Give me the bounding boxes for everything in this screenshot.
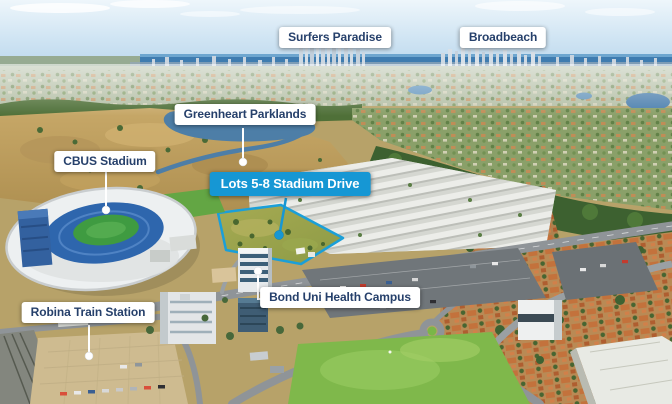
label-text: Surfers Paradise — [288, 30, 382, 44]
aerial-photo: Surfers Paradise Broadbeach Greenheart P… — [0, 0, 672, 404]
haze — [0, 64, 672, 116]
label-broadbeach: Broadbeach — [460, 27, 546, 48]
label-cbus-stadium: CBUS Stadium — [54, 151, 155, 172]
cbus-stadium-dot — [102, 206, 110, 214]
label-bond-uni-health-campus: Bond Uni Health Campus — [260, 287, 420, 308]
grass-field — [288, 332, 530, 404]
aerial-photo-artwork — [0, 0, 672, 404]
greenheart-parklands-dot — [239, 158, 247, 166]
white-tower — [518, 300, 562, 340]
label-text: Greenheart Parklands — [184, 107, 307, 121]
label-text: Lots 5-8 Stadium Drive — [221, 176, 360, 191]
blue-building — [18, 209, 53, 267]
label-greenheart-parklands: Greenheart Parklands — [175, 104, 316, 125]
lots-dot — [275, 231, 284, 240]
bond-uni-dot — [254, 267, 262, 275]
robina-train-station-dot — [85, 352, 93, 360]
label-text: Broadbeach — [469, 30, 537, 44]
label-lots-5-8-stadium-drive: Lots 5-8 Stadium Drive — [210, 172, 371, 196]
label-surfers-paradise: Surfers Paradise — [279, 27, 391, 48]
label-text: Robina Train Station — [31, 305, 146, 319]
label-robina-train-station: Robina Train Station — [22, 302, 155, 323]
label-text: CBUS Stadium — [63, 154, 146, 168]
label-text: Bond Uni Health Campus — [269, 290, 411, 304]
